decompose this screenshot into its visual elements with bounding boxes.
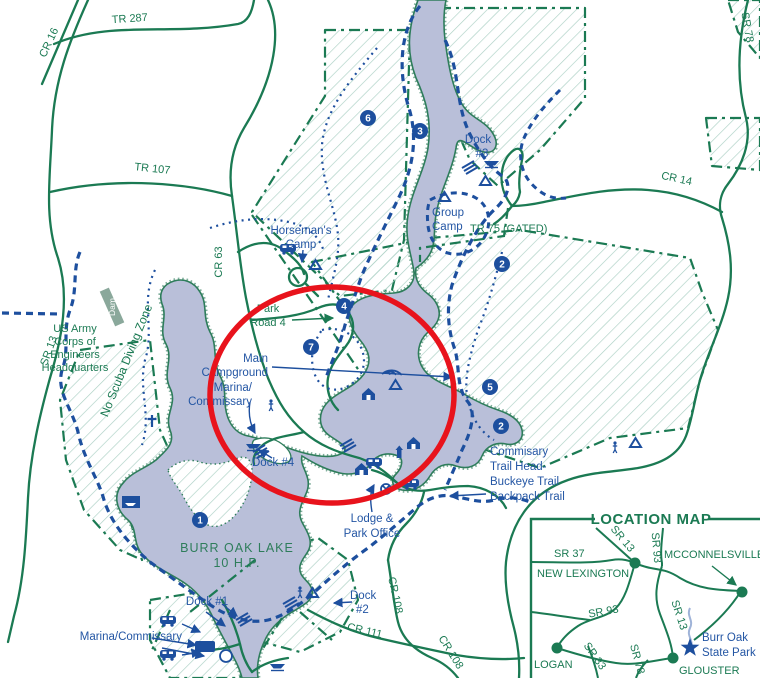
label-marina-mid-2: Commissary [188, 396, 252, 408]
label-commissary-trail-4: Backpack Trail [490, 491, 565, 503]
label-us-army-4: Headquarters [42, 362, 109, 374]
label-group-camp-1: Group [432, 207, 464, 219]
inset-label-park-1: Burr Oak [702, 632, 748, 644]
label-lodge-1: Lodge & [351, 513, 394, 525]
label-commissary-trail-1: Commisary [490, 446, 548, 458]
trail-marker-4: 4 [336, 298, 352, 314]
road-label-cr108a: CR 108 [385, 576, 404, 615]
dot-logan [552, 643, 563, 654]
dot-mcconnelsville [737, 587, 748, 598]
label-horsemans-camp-1: Horseman's [271, 225, 332, 237]
dot-new-lexington [630, 558, 641, 569]
svg-text:1: 1 [197, 516, 203, 527]
label-us-army-1: US Army [53, 323, 97, 335]
label-commissary-trail-3: Buckeye Trail [490, 476, 559, 488]
label-dock2-2: #2 [356, 604, 369, 616]
dam: Dam [97, 286, 127, 327]
trail-marker-2a: 2 [494, 256, 510, 272]
svg-text:2: 2 [499, 260, 505, 271]
arrow-park-road4 [292, 318, 333, 320]
trail-marker-3: 3 [412, 123, 428, 139]
label-us-army-2: Corps of [54, 336, 97, 348]
svg-text:5: 5 [487, 383, 493, 394]
arrow-commissary-trail [450, 494, 486, 496]
dot-glouster [668, 653, 679, 664]
label-group-camp-2: Camp [432, 221, 463, 233]
inset-label-new-lexington: NEW LEXINGTON [537, 568, 629, 580]
label-dock2-1: Dock [350, 590, 376, 602]
spillway-icon [220, 650, 232, 662]
arrow-dock2 [334, 602, 352, 603]
hatch-zone-right-block [706, 118, 760, 170]
arrow-horseman [302, 250, 303, 262]
trail-marker-7: 7 [303, 339, 319, 355]
east-camp-tent-icon [630, 438, 641, 447]
road-north-vertical [231, 0, 276, 196]
trail-marker-2b: 2 [493, 418, 509, 434]
svg-text:2: 2 [498, 422, 504, 433]
dam-label: Dam [107, 298, 117, 316]
label-dock3-1: Dock [465, 134, 491, 146]
road-tr107 [50, 183, 232, 196]
restroom-person-icon-3 [613, 441, 617, 453]
lodge-car-icon [366, 458, 382, 469]
svg-text:7: 7 [308, 343, 314, 354]
svg-text:4: 4 [341, 302, 347, 313]
south-boat-icon [270, 664, 285, 671]
label-dock3-2: #3 [476, 148, 489, 160]
label-dock4: Dock #4 [252, 457, 295, 469]
burr-oak-park-map: Dam [0, 0, 760, 678]
label-marina-mid-1: Marina/ [214, 382, 253, 394]
trail-buckeye-horizontal [2, 313, 62, 314]
hatch-zone-northeast [440, 8, 585, 186]
road-tr75-stub [494, 206, 512, 224]
trail-marker-6: 6 [360, 110, 376, 126]
label-lake-name-2: 10 H.P. [213, 556, 260, 570]
inset-title: LOCATION MAP [591, 511, 712, 528]
inset-label-mcconnelsville: MCCONNELSVILLE [664, 549, 760, 561]
location-map-inset: LOCATION MAP SR 37 NEW LEXINGTON [531, 511, 760, 678]
label-main-campground-1: Main [243, 353, 268, 365]
park-map-page: Dam [0, 0, 760, 678]
road-sr13 [8, 0, 88, 642]
label-horsemans-camp-2: Camp [286, 239, 317, 251]
inset-label-park-2: State Park [702, 647, 756, 659]
label-commissary-trail-2: Trail Head- [490, 461, 547, 473]
svg-text:3: 3 [417, 127, 423, 138]
road-label-cr111: CR 111 [346, 621, 383, 641]
boat-launch-sign-icon [122, 496, 140, 508]
road-label-cr14: CR 14 [660, 170, 693, 188]
label-lodge-2: Park Office [344, 528, 401, 540]
road-label-tr287: TR 287 [111, 12, 148, 26]
label-dock1: Dock #1 [186, 596, 228, 608]
road-label-park-road4-line2: Road 4 [250, 317, 285, 329]
label-marina-bottom: Marina/Commissary [80, 631, 182, 643]
restroom-person-icon-1 [269, 399, 273, 411]
inset-label-sr37: SR 37 [554, 548, 585, 560]
road-label-cr63: CR 63 [213, 246, 225, 277]
label-us-army-3: Engineers [50, 349, 100, 361]
trail-marker-1: 1 [192, 512, 208, 528]
trail-marker-5: 5 [482, 379, 498, 395]
road-label-tr107: TR 107 [134, 161, 171, 177]
road-cr108 [388, 560, 458, 678]
svg-text:6: 6 [365, 114, 371, 125]
marina-building-icon [195, 641, 215, 652]
inset-label-logan: LOGAN [534, 659, 573, 671]
road-label-tr75: TR 75 (GATED) [470, 223, 547, 235]
inset-label-glouster: GLOUSTER [679, 665, 740, 677]
label-lake-name-1: BURR OAK LAKE [180, 541, 294, 555]
